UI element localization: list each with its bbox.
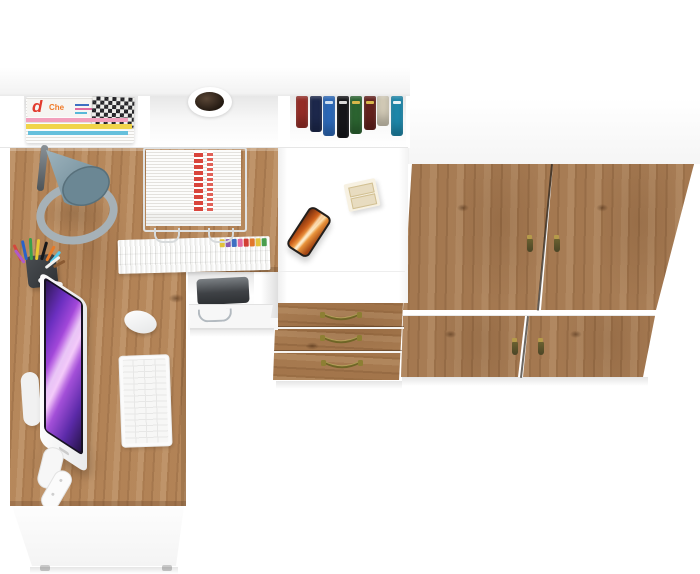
book-row <box>292 94 406 142</box>
book-spine <box>391 96 403 136</box>
book-label <box>325 101 333 104</box>
book-label <box>352 101 360 104</box>
stand-screw <box>59 478 63 482</box>
magazine-text-mark <box>75 112 87 114</box>
folder-crease <box>118 250 270 255</box>
desk-floor-shadow <box>30 567 178 574</box>
tassel-body <box>554 239 560 252</box>
drawer-handle <box>321 359 363 373</box>
hutch-top-panel <box>0 0 410 96</box>
wardrobe-door-upper-right <box>541 164 694 310</box>
magazine-stack: d Che <box>26 97 134 143</box>
stand-screw <box>51 492 55 496</box>
folder-tab <box>256 238 261 246</box>
paper-tray <box>142 146 248 244</box>
tassel-body <box>512 342 518 355</box>
drawer-gap <box>274 327 404 329</box>
book-spine <box>364 96 376 130</box>
book-spine <box>323 96 335 136</box>
desk-front-panel <box>12 506 184 566</box>
printer <box>196 277 249 306</box>
desk-column-front-edge <box>10 501 186 506</box>
keyboard-keys <box>123 358 169 443</box>
folder-tab <box>262 238 267 246</box>
wardrobe-floor-shadow <box>402 377 648 386</box>
lamp-shade <box>40 142 116 212</box>
book-label <box>339 101 347 104</box>
wardrobe-tassel-handle <box>537 338 544 356</box>
book-spine <box>310 96 322 132</box>
keyboard <box>118 354 172 448</box>
wardrobe-door-lower-left <box>401 316 525 377</box>
furniture-render-scene: d Che <box>0 0 700 574</box>
drawer-unit-floor-shadow <box>276 381 402 389</box>
under-desk-floor-shadow <box>190 328 274 337</box>
tray-wire-frame <box>143 147 247 232</box>
book-spine <box>296 96 308 128</box>
tray-wire-leg <box>208 228 234 243</box>
monitor-screen <box>46 280 81 453</box>
cabinet-front-edge <box>278 271 405 272</box>
magazine-stripe <box>26 124 132 129</box>
magazine-text-mark <box>75 108 93 110</box>
wardrobe-tassel-handle <box>553 235 560 253</box>
magazine-letter: d <box>32 99 42 117</box>
tray-wire-leg <box>154 228 180 243</box>
book-spine <box>337 96 349 138</box>
wardrobe-tassel-handle <box>526 235 533 253</box>
wardrobe-tassel-handle <box>511 338 518 356</box>
book-label <box>393 101 401 104</box>
drawer-gap <box>274 351 402 353</box>
monitor-bezel <box>44 277 83 456</box>
magazine-checker-cover <box>91 96 134 127</box>
desk-column-right-edge <box>181 272 186 506</box>
cable-grommet-hole <box>195 92 224 111</box>
drawer-handle <box>320 311 362 325</box>
magazine-word: Che <box>49 103 64 112</box>
book-spine <box>377 96 389 126</box>
magazine-stripe <box>26 118 128 122</box>
magazine-stripe <box>28 131 128 135</box>
folder-tab <box>250 238 255 246</box>
drawer-handle <box>320 334 362 348</box>
book-label <box>366 101 374 104</box>
monitor-rear-foot <box>20 371 42 426</box>
magazine-text-mark <box>75 104 89 106</box>
book-spine <box>350 96 362 134</box>
wardrobe-top-panel <box>408 0 700 164</box>
tassel-body <box>527 239 533 252</box>
tassel-body <box>538 342 544 355</box>
folder-crease <box>118 260 270 265</box>
monitor <box>40 271 87 474</box>
